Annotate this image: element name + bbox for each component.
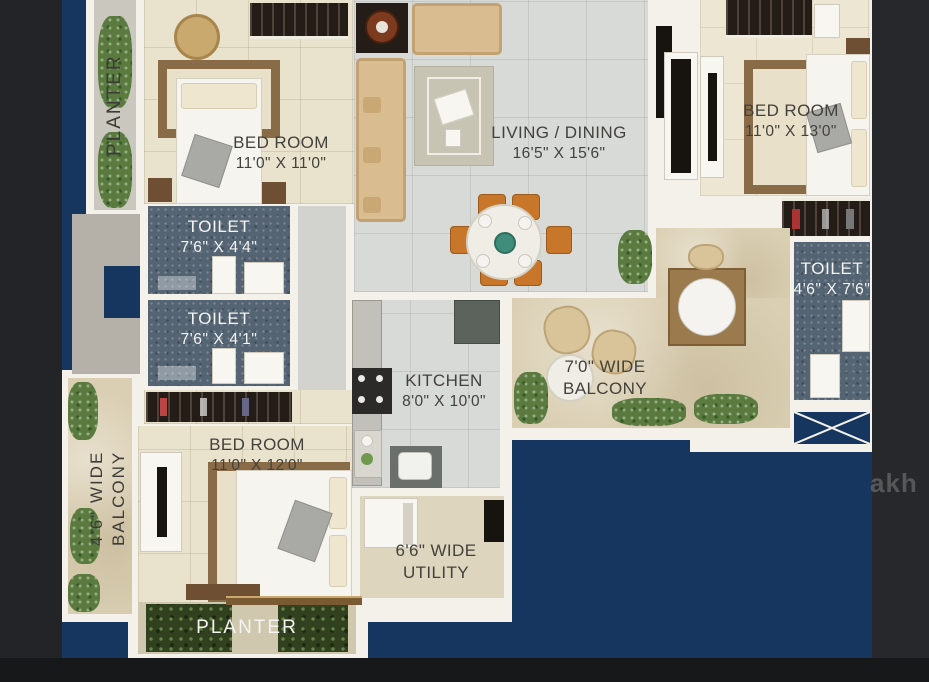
- utility-cabinet-icon: [484, 500, 504, 542]
- sofa-icon: [356, 58, 406, 222]
- balcony-right-label: 7'0" WIDE BALCONY: [545, 356, 665, 400]
- shower-icon: [212, 348, 236, 384]
- shelf-icon: [354, 430, 382, 478]
- washbasin-icon: [244, 262, 284, 294]
- dining-table-icon: [466, 204, 542, 280]
- wardrobe-icon: [726, 0, 812, 38]
- bedroom-topleft-label: BED ROOM 11'0" X 11'0": [208, 132, 354, 174]
- planter-left-area: PLANTER: [94, 0, 136, 210]
- foyer: [656, 0, 700, 232]
- floorplan-canvas: PLANTER BED ROOM 11'0" X 11'0": [0, 0, 929, 682]
- bottom-letterbox: [0, 658, 929, 682]
- toilet-mid-label: TOILET 7'6" X 4'1": [148, 308, 290, 350]
- toilet-wc-icon: [810, 354, 840, 398]
- bedroom-bottomleft-label: BED ROOM 11'0" X 12'0": [172, 434, 342, 476]
- stool-icon: [148, 178, 172, 202]
- bed-icon: [236, 470, 352, 598]
- bedroom-topleft: BED ROOM 11'0" X 11'0": [144, 0, 354, 204]
- kitchen: KITCHEN 8'0" X 10'0": [352, 300, 500, 488]
- vanity-chair-icon: [688, 244, 724, 270]
- plant-icon: [514, 372, 548, 424]
- fridge-icon: [454, 300, 500, 344]
- washbasin-icon: [244, 352, 284, 384]
- window-ledge: [794, 412, 870, 444]
- right-letterbox: [872, 0, 929, 682]
- toilet-top: TOILET 7'6" X 4'4": [148, 206, 290, 294]
- plant-icon: [618, 230, 652, 284]
- dining-chair-icon: [546, 226, 572, 254]
- wardrobe-icon: [146, 392, 292, 422]
- duct-shaft: [104, 266, 140, 318]
- utility: 6'6" WIDE UTILITY: [360, 496, 504, 598]
- stool-icon: [262, 182, 286, 204]
- bedroom-topright: BED ROOM 11'0" X 13'0": [700, 0, 870, 196]
- side-table-icon: [356, 3, 408, 53]
- living-label: LIVING / DINING 16'5" X 15'6": [474, 122, 644, 164]
- washbasin-icon: [842, 300, 870, 352]
- toilet-top-label: TOILET 7'6" X 4'4": [148, 216, 290, 258]
- kitchen-label: KITCHEN 8'0" X 10'0": [386, 370, 502, 412]
- toilet-right-label: TOILET 4'6" X 7'6": [790, 258, 874, 300]
- shower-icon: [212, 256, 236, 294]
- toilet-fixture-icon: [158, 276, 196, 290]
- planter-ledge: [226, 596, 362, 605]
- dressing-passage: [144, 390, 352, 424]
- passage: [298, 206, 346, 392]
- jacuzzi-icon: [668, 268, 746, 346]
- toilet-mid: TOILET 7'6" X 4'1": [148, 300, 290, 386]
- basket-icon: [174, 14, 220, 60]
- corridor: [72, 214, 140, 374]
- balcony-left: 4'6" WIDE BALCONY: [68, 378, 132, 614]
- wardrobe-icon: [782, 198, 870, 236]
- loveseat-icon: [412, 3, 502, 55]
- planter-bottom-label: PLANTER: [138, 616, 356, 641]
- planter-left-label: PLANTER: [94, 0, 136, 210]
- plant-icon: [694, 394, 758, 424]
- watermark-text: akh: [870, 468, 928, 499]
- toilet-right: TOILET 4'6" X 7'6": [794, 242, 870, 400]
- wardrobe-icon: [250, 3, 348, 39]
- sink-unit-icon: [390, 446, 442, 488]
- living-dining: LIVING / DINING 16'5" X 15'6": [354, 0, 648, 292]
- plant-icon: [612, 398, 686, 426]
- balcony-left-label: 4'6" WIDE BALCONY: [86, 398, 132, 598]
- utility-label: 6'6" WIDE UTILITY: [378, 540, 494, 584]
- planter-bottom-area: PLANTER: [138, 602, 356, 654]
- toilet-fixture-icon: [158, 366, 196, 380]
- dresser-icon: [814, 4, 840, 38]
- bedroom-topright-label: BED ROOM 11'0" X 13'0": [716, 100, 866, 142]
- left-letterbox: [0, 0, 62, 682]
- bedroom-bottomleft: BED ROOM 11'0" X 12'0": [138, 426, 352, 606]
- wardrobe-unit-icon: [664, 52, 698, 180]
